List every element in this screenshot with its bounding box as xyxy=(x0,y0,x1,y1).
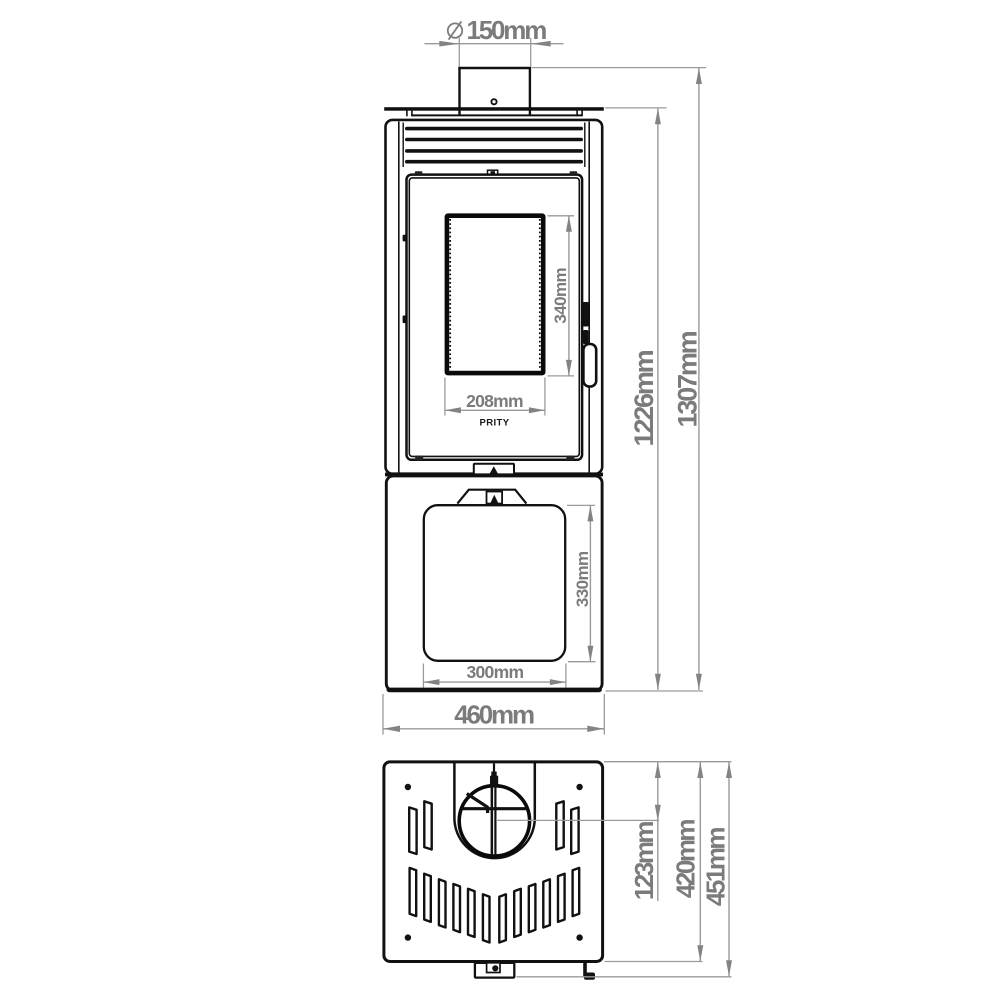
svg-text:123mm: 123mm xyxy=(629,822,659,900)
svg-text:460mm: 460mm xyxy=(454,700,534,730)
svg-text:208mm: 208mm xyxy=(466,391,523,411)
svg-text:451mm: 451mm xyxy=(701,828,731,906)
svg-text:1226mm: 1226mm xyxy=(629,350,659,446)
svg-text:150mm: 150mm xyxy=(467,15,547,45)
svg-text:300mm: 300mm xyxy=(466,662,523,682)
svg-text:420mm: 420mm xyxy=(671,820,701,898)
svg-text:1307mm: 1307mm xyxy=(673,331,703,427)
svg-text:340mm: 340mm xyxy=(551,268,570,324)
svg-text:PRITY: PRITY xyxy=(480,418,510,429)
svg-text:330mm: 330mm xyxy=(573,551,592,607)
